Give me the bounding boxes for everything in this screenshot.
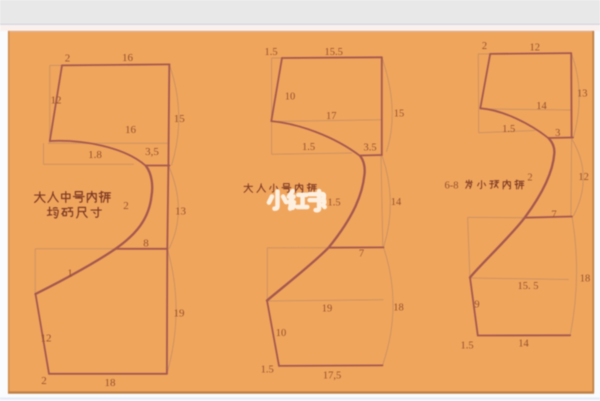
svg-text:2: 2	[527, 173, 532, 184]
svg-text:6-8: 6-8	[445, 180, 459, 191]
svg-text:3: 3	[555, 128, 560, 139]
svg-text:9: 9	[474, 300, 479, 311]
svg-text:12: 12	[41, 333, 52, 345]
svg-text:17,5: 17,5	[323, 371, 341, 382]
svg-text:1: 1	[67, 268, 73, 280]
svg-text:16: 16	[122, 52, 134, 64]
svg-text:15: 15	[174, 113, 186, 125]
svg-text:7: 7	[359, 249, 364, 260]
svg-text:2: 2	[482, 41, 487, 52]
svg-text:14: 14	[536, 101, 547, 112]
svg-text:17: 17	[326, 111, 337, 122]
svg-text:1.5: 1.5	[264, 47, 277, 58]
svg-text:14: 14	[518, 339, 529, 350]
svg-text:1.8: 1.8	[88, 149, 102, 161]
svg-text:7: 7	[551, 210, 556, 221]
svg-text:3,5: 3,5	[145, 146, 159, 158]
svg-text:19: 19	[174, 308, 186, 320]
svg-text:15: 15	[394, 109, 405, 120]
svg-text:18: 18	[393, 303, 404, 314]
svg-text:2: 2	[65, 53, 71, 65]
svg-text:13: 13	[175, 206, 187, 218]
svg-text:18: 18	[105, 377, 117, 389]
svg-text:15. 5: 15. 5	[518, 281, 539, 292]
svg-text:15.5: 15.5	[325, 47, 343, 58]
svg-text:1.5: 1.5	[502, 124, 515, 135]
svg-text:1.5: 1.5	[261, 364, 274, 375]
svg-text:18: 18	[580, 274, 591, 285]
svg-text:10: 10	[285, 92, 296, 103]
svg-text:2: 2	[41, 375, 47, 387]
svg-text:12: 12	[578, 172, 589, 183]
svg-text:12: 12	[51, 95, 62, 107]
svg-text:8: 8	[143, 238, 149, 250]
svg-text:19: 19	[322, 304, 333, 315]
svg-text:14: 14	[391, 197, 402, 208]
svg-text:3.5: 3.5	[363, 143, 376, 154]
svg-text:1.5: 1.5	[327, 198, 340, 209]
svg-text:1.5: 1.5	[302, 142, 315, 153]
svg-text:1.5: 1.5	[460, 341, 473, 352]
svg-text:13: 13	[577, 88, 588, 99]
svg-text:16: 16	[125, 124, 137, 136]
svg-text:12: 12	[530, 42, 541, 53]
svg-text:10: 10	[276, 328, 287, 339]
svg-text:2: 2	[123, 200, 129, 212]
